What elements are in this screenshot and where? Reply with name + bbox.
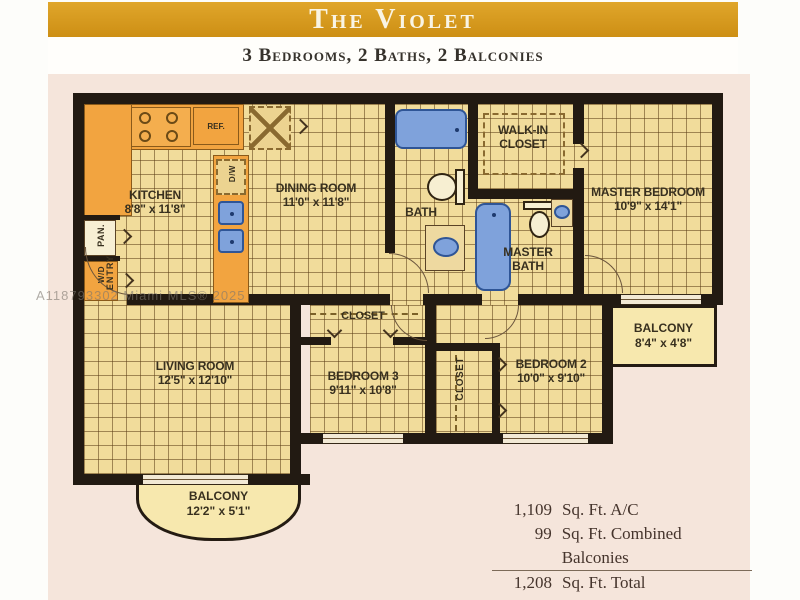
bath-sink — [433, 237, 459, 257]
master-sink — [554, 205, 570, 219]
balcony-bottom-dims: 12'2" x 5'1" — [187, 504, 251, 518]
stat-row: 1,208 Sq. Ft. Total — [492, 571, 752, 595]
balcony-right-label: BALCONY — [634, 321, 693, 335]
wall — [301, 337, 331, 345]
bedroom3-closet-label: CLOSET — [341, 309, 384, 323]
balcony-right: BALCONY 8'4" x 4'8" — [613, 305, 717, 367]
stat-value — [492, 595, 562, 600]
stat-label: Approximate — [562, 595, 652, 600]
master-toilet — [529, 211, 550, 238]
walkin-closet-label: WALK-INCLOSET — [498, 123, 548, 151]
stat-label: Sq. Ft. Combined Balconies — [562, 522, 752, 570]
ac-closet — [249, 106, 291, 150]
mls-watermark: A118793302 Miami MLS® 2025 — [36, 288, 246, 303]
master-balcony-door-window — [621, 294, 701, 305]
hall-closet-label: CLOSET — [455, 357, 466, 401]
kitchen-label: KITCHEN8'8" x 11'8" — [125, 188, 186, 216]
dishwasher: D/W — [216, 159, 246, 195]
bedroom2-label: BEDROOM 210'0" x 9'10" — [516, 357, 587, 385]
stat-value: 1,109 — [492, 498, 562, 522]
wall — [468, 104, 478, 189]
balcony-right-dims: 8'4" x 4'8" — [635, 336, 692, 350]
page-title: The Violet — [309, 4, 477, 36]
stat-label: Sq. Ft. Total — [562, 571, 646, 595]
bath-label: BATH — [405, 205, 437, 219]
dishwasher-label: D/W — [228, 165, 237, 182]
wall — [423, 294, 482, 305]
stove — [131, 107, 191, 147]
stat-row: 99 Sq. Ft. Combined Balconies — [492, 522, 752, 571]
wall — [290, 305, 301, 485]
toilet — [427, 173, 457, 201]
bathtub — [395, 109, 467, 149]
kitchen-sink — [218, 229, 244, 253]
living-room-label: LIVING ROOM12'5" x 12'10" — [156, 359, 234, 387]
bedroom3-label: BEDROOM 39'11" x 10'8" — [328, 369, 399, 397]
dining-label: DINING ROOM11'0" x 11'8" — [276, 181, 356, 209]
title-band: The Violet — [48, 2, 738, 37]
balcony-bottom-label: BALCONY — [189, 489, 248, 503]
wall — [712, 93, 723, 305]
stat-row: Approximate — [492, 595, 752, 600]
bedroom2-window — [503, 433, 588, 444]
master-bedroom-label: MASTER BEDROOM10'9" x 14'1" — [591, 185, 705, 213]
refrigerator-label: REF. — [207, 122, 224, 131]
wall — [385, 104, 395, 253]
square-footage-stats: 1,109 Sq. Ft. A/C 99 Sq. Ft. Combined Ba… — [492, 498, 752, 600]
master-bath-label: MASTERBATH — [503, 245, 552, 273]
floorplan-page: The Violet 3 Bedrooms, 2 Baths, 2 Balcon… — [0, 0, 800, 600]
kitchen-sink — [218, 201, 244, 225]
stat-value: 99 — [492, 522, 562, 570]
balcony-door-window — [143, 474, 248, 485]
entry-label: ENTRY — [105, 255, 115, 290]
refrigerator: REF. — [193, 107, 239, 145]
bedroom3-window — [323, 433, 403, 444]
wall — [602, 305, 613, 444]
stat-value: 1,208 — [492, 571, 562, 595]
wall — [425, 343, 500, 351]
pantry-label: PAN. — [96, 224, 106, 247]
wall — [573, 168, 584, 305]
stat-label: Sq. Ft. A/C — [562, 498, 639, 522]
subtitle-band: 3 Bedrooms, 2 Baths, 2 Balconies — [48, 37, 738, 74]
stat-row: 1,109 Sq. Ft. A/C — [492, 498, 752, 522]
page-subtitle: 3 Bedrooms, 2 Baths, 2 Balconies — [242, 45, 543, 67]
wall — [73, 93, 723, 104]
floor-living — [84, 305, 299, 474]
wall — [573, 104, 584, 144]
wall — [468, 189, 584, 199]
